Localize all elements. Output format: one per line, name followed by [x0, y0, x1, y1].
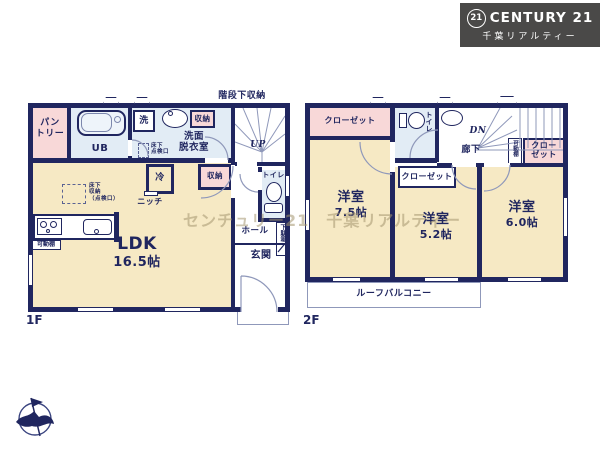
label-stairs-down: DN	[466, 126, 490, 137]
wall-room2-room3	[477, 163, 482, 282]
door-gap-ldk-hall	[231, 165, 235, 198]
label-underfloor-hatch: 床下 点検口	[151, 143, 181, 156]
toilet-bowl-1f	[266, 182, 282, 202]
floorplan-canvas: 階段下収納 パン トリー UB 洗 収納 洗面 脱衣室 床下 点検口 UP 冷 …	[0, 0, 600, 450]
door-gap-washroom	[205, 158, 228, 163]
century21-seal-icon: 21	[467, 9, 486, 28]
sink-faucet	[94, 229, 99, 234]
vent-1f-2	[134, 97, 150, 104]
wall-pantry-right	[67, 108, 71, 158]
label-washer: 洗	[133, 116, 155, 127]
window-2f-bottom-3	[508, 277, 541, 282]
label-floor2: 2F	[303, 313, 320, 327]
wall-1f-right	[285, 103, 290, 312]
label-closet-room3: クロー ゼット	[525, 141, 563, 160]
wall-2f-right	[563, 103, 568, 282]
label-stair-storage: 階段下収納	[206, 91, 278, 102]
vent-2f-1	[370, 97, 386, 104]
label-entrance: 玄関	[238, 250, 284, 262]
wall-toilet-bottom-2f	[395, 158, 437, 163]
bathtub-drain	[114, 116, 121, 123]
wall-1f-mid-horizontal	[28, 158, 235, 163]
door-gap-room3	[484, 163, 510, 167]
wall-toilet-right-2f	[435, 108, 439, 162]
label-storage-top: 収納	[190, 115, 215, 124]
window-1f-bottom-1	[78, 307, 113, 312]
wall-closet1-bottom	[310, 136, 390, 140]
label-ldk: LDK	[102, 234, 172, 254]
logo-company: 千葉リアルティー	[482, 29, 577, 42]
label-toilet-2f: トイレ	[424, 111, 434, 132]
label-storage-mid: 収納	[198, 172, 232, 181]
toilet-tank-1f	[264, 203, 283, 213]
washbasin-icon-1f	[162, 109, 188, 128]
toilet-bowl-2f	[408, 112, 425, 129]
label-movable-shelf-1f: 可動棚	[31, 241, 61, 248]
logo-brand: CENTURY 21	[490, 10, 594, 26]
niche-tick	[144, 191, 158, 196]
label-hall: ホール	[235, 226, 275, 236]
label-room3: 洋室	[498, 200, 546, 215]
label-niche: ニッチ	[133, 197, 167, 206]
underfloor-hatch-box	[138, 143, 149, 158]
bathtub-inner	[81, 113, 112, 132]
stove-burner-2	[50, 221, 57, 228]
compass-icon	[8, 386, 62, 444]
door-gap-hall-stairs	[237, 162, 257, 166]
wall-room1-right	[390, 103, 395, 282]
door-gap-ub	[128, 140, 132, 156]
window-1f-bottom-2	[165, 307, 200, 312]
hall-step-line	[235, 243, 285, 245]
toilet-tank-2f	[399, 113, 407, 128]
label-stairs-up: UP	[246, 140, 270, 151]
wall-toilet-bottom-1f	[258, 218, 290, 222]
stove-burner-1	[40, 221, 47, 228]
label-ldk-size: 16.5帖	[97, 255, 177, 270]
century21-logo: 21 CENTURY 21 千葉リアルティー	[460, 3, 600, 47]
label-closet-room2: クローゼット	[399, 172, 455, 181]
label-underfloor-storage: 床下 収納 （点検口）	[89, 183, 125, 202]
label-closet-room1: クローゼット	[314, 116, 386, 125]
door-gap-room1	[390, 142, 395, 172]
label-toilet-1f: トイレ	[261, 171, 286, 179]
window-1f-left	[28, 255, 33, 285]
entrance-porch	[237, 312, 289, 325]
label-pantry: パン トリー	[35, 118, 65, 139]
label-fridge: 冷	[146, 173, 174, 184]
washbasin-faucet-1f	[168, 111, 173, 116]
washbasin-icon-2f	[441, 110, 463, 126]
label-movable-shelf-2f: 可動棚	[511, 140, 519, 157]
door-gap-room2	[452, 163, 476, 167]
stove-burner-3	[46, 229, 50, 233]
label-room1-size: 7.5帖	[328, 207, 374, 220]
label-room2-size: 5.2帖	[412, 229, 460, 242]
label-room1: 洋室	[328, 190, 374, 205]
label-unit-bath: UB	[88, 143, 112, 155]
vent-2f-stairs	[497, 96, 517, 104]
label-corridor: 廊下	[455, 145, 487, 156]
window-2f-right	[563, 198, 568, 236]
underfloor-storage-box	[62, 184, 86, 204]
label-floor1: 1F	[26, 313, 43, 327]
staircase-up-icon	[235, 108, 285, 162]
label-room3-size: 6.0帖	[498, 217, 546, 230]
wall-2f-left	[305, 103, 310, 282]
label-room2: 洋室	[412, 212, 460, 227]
vent-2f-2	[437, 97, 453, 104]
label-balcony: ルーフバルコニー	[320, 289, 468, 300]
vent-1f-1	[103, 97, 119, 104]
window-2f-left	[305, 200, 310, 230]
label-shoe-cabinet: 下駄箱	[278, 224, 287, 242]
